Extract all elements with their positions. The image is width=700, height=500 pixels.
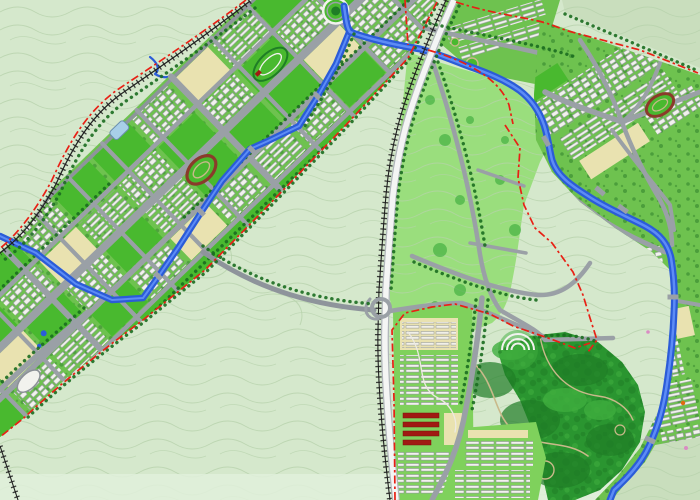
- amphitheater: [498, 330, 538, 370]
- rowhouse-block: [465, 440, 533, 466]
- housing-strip: [468, 430, 528, 438]
- map-canvas: [0, 0, 700, 500]
- rowhouse-block: [455, 470, 530, 498]
- master-plan-map: [0, 0, 700, 500]
- garden-circle: [451, 38, 459, 46]
- rowhouse-block: [400, 355, 458, 405]
